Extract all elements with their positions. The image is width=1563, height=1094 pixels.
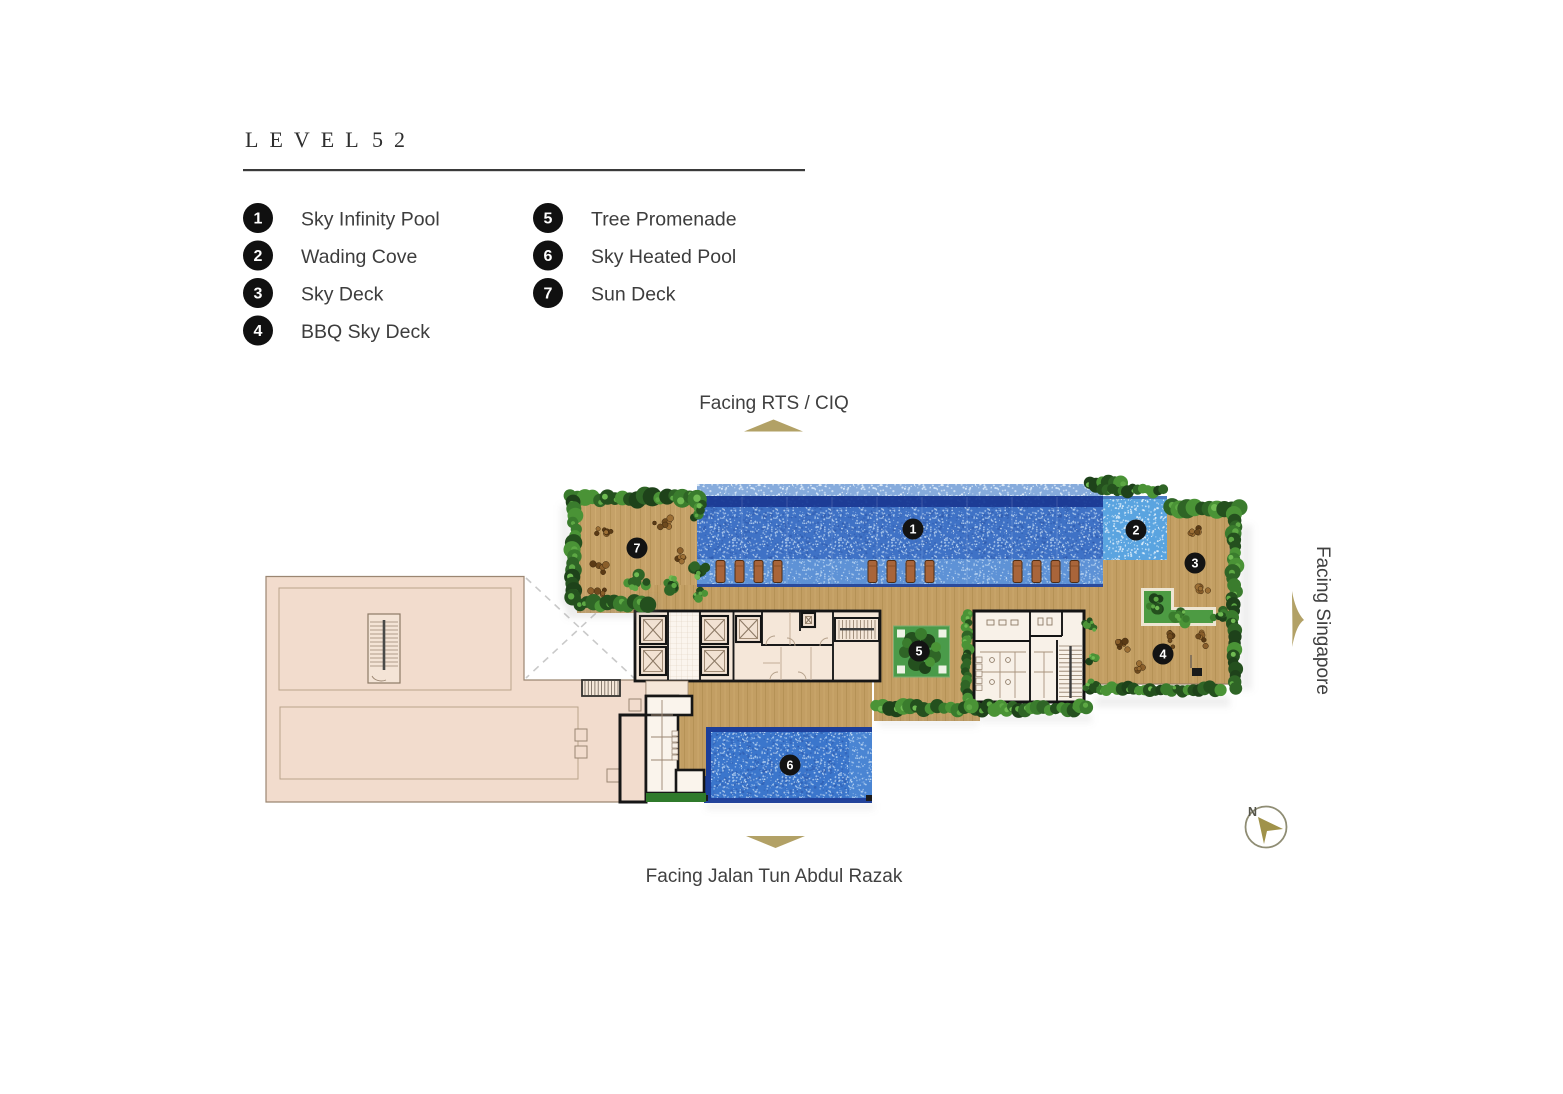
svg-text:BBQ Sky Deck: BBQ Sky Deck — [301, 321, 430, 343]
svg-text:Tree Promenade: Tree Promenade — [591, 209, 737, 231]
svg-text:3: 3 — [1192, 557, 1199, 571]
svg-text:1: 1 — [910, 523, 917, 537]
svg-text:Facing RTS / CIQ: Facing RTS / CIQ — [699, 393, 849, 414]
svg-text:Facing Jalan Tun Abdul Razak: Facing Jalan Tun Abdul Razak — [646, 866, 903, 887]
svg-text:3: 3 — [254, 286, 263, 303]
svg-text:4: 4 — [1160, 648, 1167, 662]
svg-text:2: 2 — [1133, 524, 1140, 538]
svg-text:4: 4 — [254, 323, 263, 340]
svg-text:N: N — [1248, 805, 1257, 819]
svg-text:6: 6 — [544, 248, 553, 265]
svg-text:Wading Cove: Wading Cove — [301, 246, 417, 268]
svg-text:52: 52 — [372, 127, 416, 152]
svg-text:Sky Heated Pool: Sky Heated Pool — [591, 246, 736, 268]
svg-text:Sky Deck: Sky Deck — [301, 284, 384, 306]
svg-text:2: 2 — [254, 248, 263, 265]
svg-text:Sun Deck: Sun Deck — [591, 284, 676, 306]
svg-text:7: 7 — [544, 286, 553, 303]
svg-text:1: 1 — [254, 211, 263, 228]
svg-text:7: 7 — [634, 542, 641, 556]
svg-text:5: 5 — [916, 645, 923, 659]
svg-text:5: 5 — [544, 211, 553, 228]
svg-text:Sky Infinity Pool: Sky Infinity Pool — [301, 209, 440, 231]
svg-text:LEVEL: LEVEL — [245, 127, 370, 152]
svg-text:6: 6 — [787, 759, 794, 773]
svg-text:Facing Singapore: Facing Singapore — [1312, 546, 1333, 695]
